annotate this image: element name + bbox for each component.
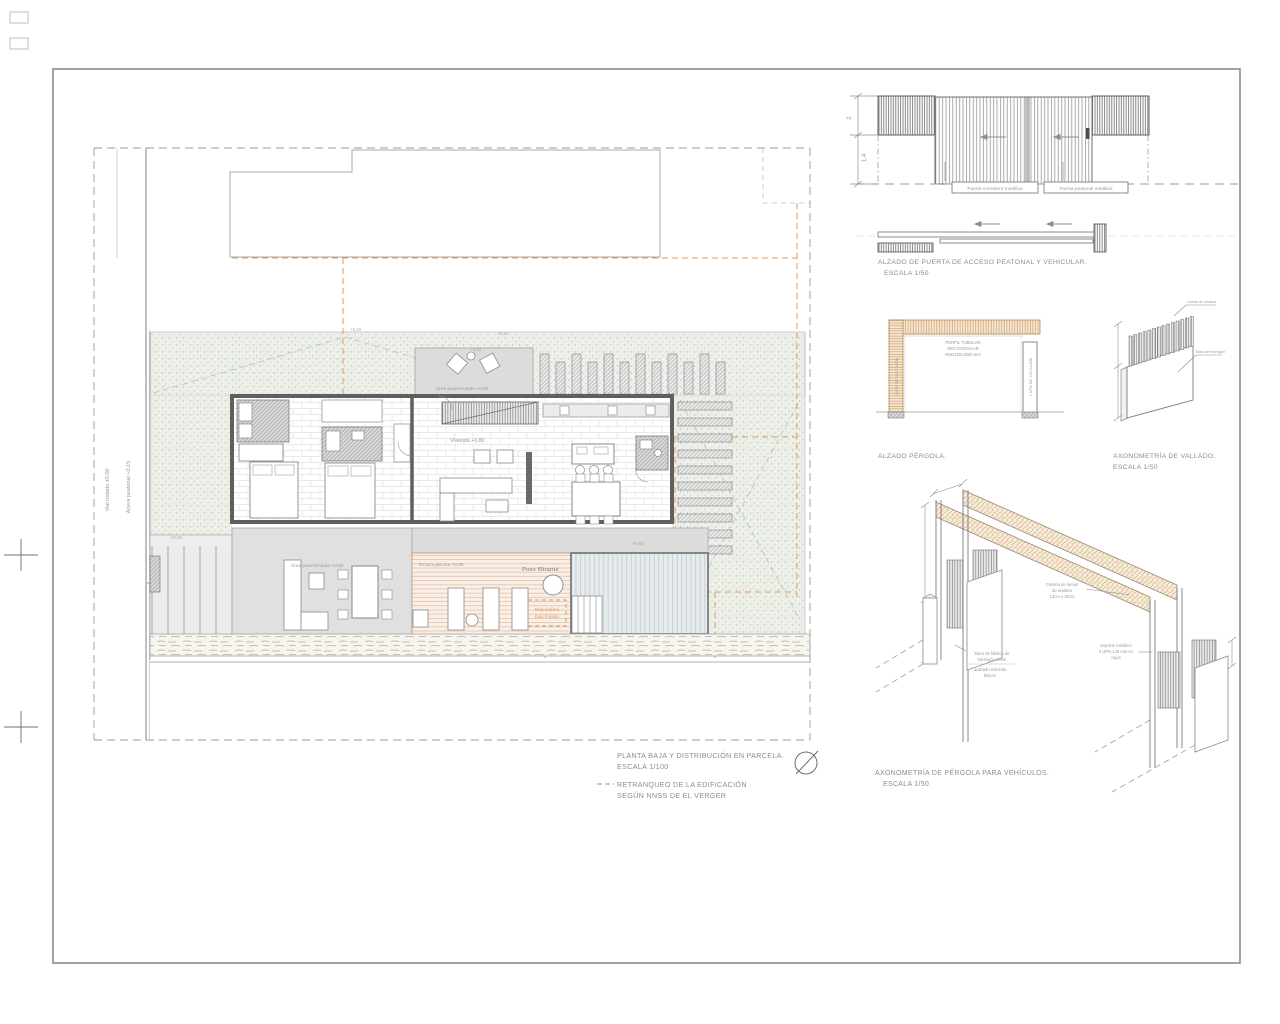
label-nivel-acceso: +0,15 [170, 535, 182, 541]
label-depuradora-1: Depuradora [535, 607, 560, 612]
axon-celosia-1: Celosía de lamas [1046, 582, 1078, 587]
label-area-pavimentada-top: Área pavimentada +0,80 [436, 385, 489, 392]
registration-cross-icon [4, 539, 38, 571]
label-nivel-top-right: +0,15 [497, 331, 509, 336]
pool [571, 553, 708, 634]
label-depuradora-2: bajo forjado [535, 614, 559, 619]
pool-deck-band [412, 528, 708, 553]
plan-legend-1: RETRANQUEO DE LA EDIFICACIÓN [617, 780, 747, 789]
axon-celosia-2: de madera [1052, 588, 1073, 593]
pergola-note-2: RECTANGULAR [947, 346, 978, 351]
plan-title: PLANTA BAJA Y DISTRIBUCIÓN EN PARCELA. [617, 751, 784, 760]
plan-legend-2: SEGÚN NNSS DE EL VERGER [617, 791, 726, 800]
axon-soporte-2: 2 UPN 140 mm en [1099, 649, 1134, 654]
label-nivel-top-left: +0,15 [350, 327, 362, 332]
axon-muro-4: blanco [984, 673, 997, 678]
label-nivel-patio: +0,80 [470, 347, 482, 352]
pozo-filtrante-circle [543, 575, 563, 595]
gate-title: ALZADO DE PUERTA DE ACCESO PEATONAL Y VE… [878, 259, 1087, 266]
pergola-note-3: 600x120x3000 mm [945, 352, 981, 357]
vallado-label-lamas: Lamas de madera [1187, 300, 1216, 304]
gate-label-peatonal: Puerta peatonal metálica [1059, 186, 1112, 192]
axon-celosia-3: 12cm x 30cm [1050, 594, 1075, 599]
vallado-scale: ESCALA 1/50 [1113, 464, 1158, 471]
label-vivienda: Vivienda +0,80 [450, 438, 484, 444]
axon-soporte-3: cajón [1111, 655, 1122, 660]
vallado-title: AXONOMETRÍA DE VALLADO. [1113, 451, 1216, 460]
gate-scale: ESCALA 1/50 [884, 270, 929, 277]
gate-dim-partial: 1,4 [862, 153, 868, 162]
axon-muro-1: Muro de fábrica de [975, 651, 1011, 656]
label-nivel-piscina: +0,80 [632, 541, 644, 546]
registration-cross-icon [4, 711, 38, 743]
vallado-label-muro: Muro de hormigón [1196, 350, 1225, 354]
pergola-post-label-left: 2 UPN DE 120 CAJÓN [894, 357, 899, 396]
pergola-elev-title: ALZADO PÉRGOLA. [878, 451, 946, 460]
pergola-post-label-right: 2 UPN DE 120 CAJÓN [1028, 357, 1033, 396]
axon-scale: ESCALA 1/50 [883, 781, 929, 788]
label-pozo-filtrante: Pozo filtrante [522, 567, 559, 573]
house [232, 396, 672, 524]
label-vial-rodado: Vial rodado ±0,00 [105, 469, 111, 512]
label-terraza-piscina: Terraza piscina +0,80 [418, 562, 464, 568]
axon-muro-3: acabado enlucido [974, 667, 1008, 672]
pergola-note-1: PERFIL TUBULAR [945, 340, 980, 345]
axon-muro-2: hormigón 20cm [978, 657, 1007, 662]
label-acera-peatonal: Acera peatonal +0,15 [126, 461, 132, 513]
label-area-pavimentada-bottom: Área pavimentada +0,80 [291, 562, 344, 569]
axon-title: AXONOMETRÍA DE PÉRGOLA PARA VEHÍCULOS. [875, 768, 1049, 777]
drawing-sheet: Vial rodado ±0,00 Acera peatonal +0,15 Á… [0, 0, 1280, 1024]
axon-soporte-1: Soporte metálico [1100, 643, 1132, 648]
gate-label-corredera: Puerta corredera metálica [967, 186, 1023, 192]
plan-scale: ESCALA 1/100 [617, 762, 669, 771]
